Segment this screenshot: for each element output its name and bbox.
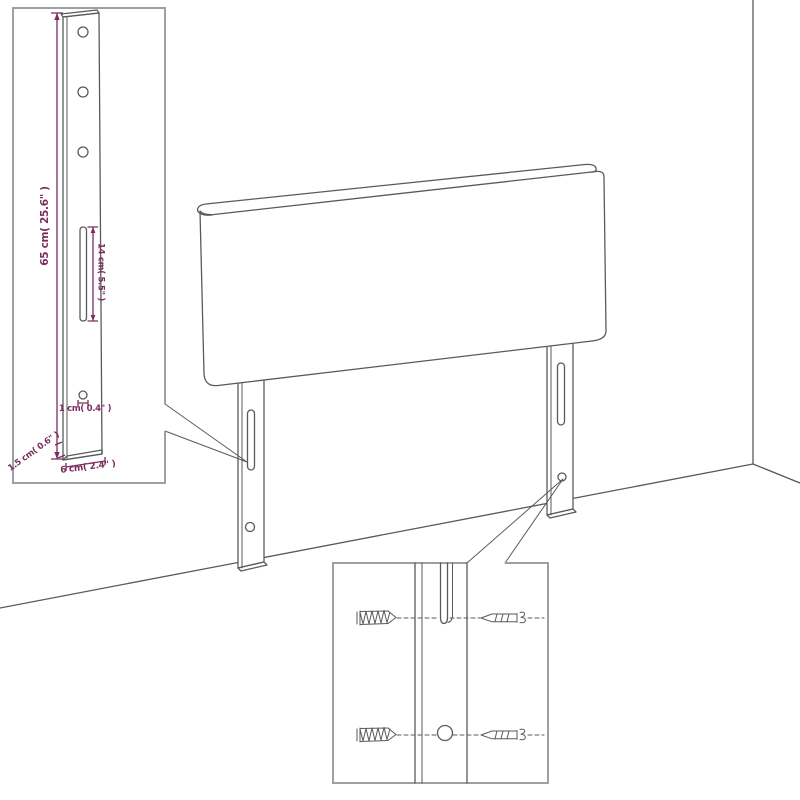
right-leg-slot bbox=[558, 363, 565, 425]
headboard-left-leg bbox=[238, 375, 267, 571]
detail-slot-depth-line bbox=[448, 563, 453, 623]
left-leg-hole bbox=[246, 523, 255, 532]
inset-pin-hole bbox=[79, 391, 87, 399]
threaded-screw-top bbox=[357, 611, 396, 626]
leader-to-left-slot bbox=[165, 404, 247, 462]
dimension-label-slot: 14 cm( 5.5" ) bbox=[96, 243, 105, 301]
headboard-right-leg bbox=[547, 339, 576, 518]
panel-body bbox=[200, 171, 606, 385]
headboard-panel bbox=[198, 164, 606, 385]
product-dimension-diagram: 65 cm( 25.6" ) 14 cm( 5.5" ) 1 cm( 0.4" … bbox=[0, 0, 800, 800]
leader-to-right-hole bbox=[467, 479, 563, 563]
floor-line-left bbox=[0, 464, 753, 608]
detail-keyhole-slot bbox=[441, 563, 448, 624]
inset-screw-detail bbox=[333, 563, 548, 783]
wood-screw-top bbox=[481, 612, 525, 623]
threaded-screw-bottom bbox=[357, 728, 396, 743]
left-leg-slot bbox=[248, 410, 255, 470]
callout-leader-lines bbox=[165, 404, 563, 563]
line-art bbox=[0, 0, 800, 800]
dimension-label-hole: 1 cm( 0.4" ) bbox=[59, 405, 111, 414]
inset-mount-hole-2 bbox=[78, 87, 88, 97]
dimension-line-height bbox=[51, 13, 63, 459]
detail-pin-hole bbox=[438, 726, 453, 741]
floor-line-right bbox=[753, 464, 800, 483]
inset-mount-hole-3 bbox=[78, 147, 88, 157]
inset-mount-hole-1 bbox=[78, 27, 88, 37]
wood-screw-bottom bbox=[481, 729, 525, 740]
inset-keyhole-slot bbox=[80, 227, 87, 321]
dimension-label-height: 65 cm( 25.6" ) bbox=[40, 186, 51, 266]
